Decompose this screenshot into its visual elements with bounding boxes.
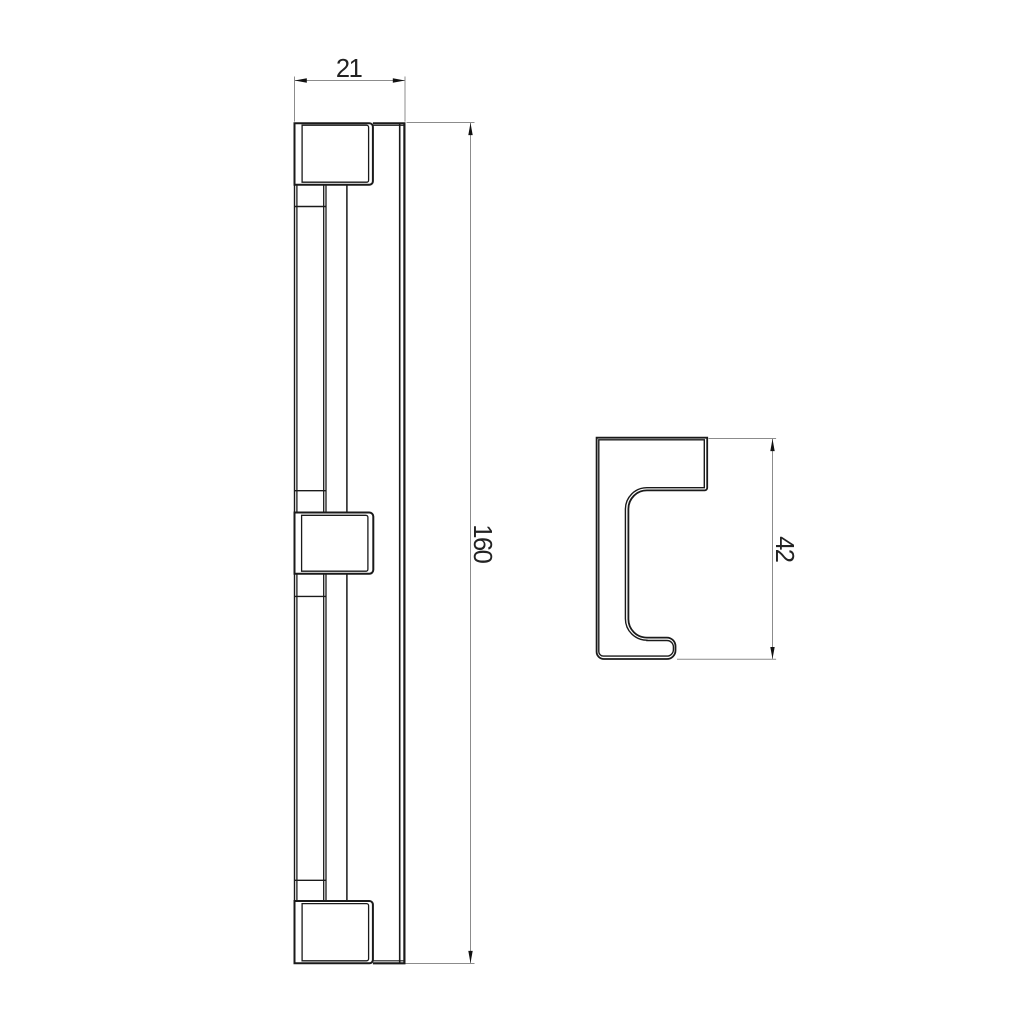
svg-text:21: 21 (336, 55, 362, 83)
svg-text:42: 42 (770, 536, 798, 562)
svg-text:160: 160 (468, 524, 496, 563)
